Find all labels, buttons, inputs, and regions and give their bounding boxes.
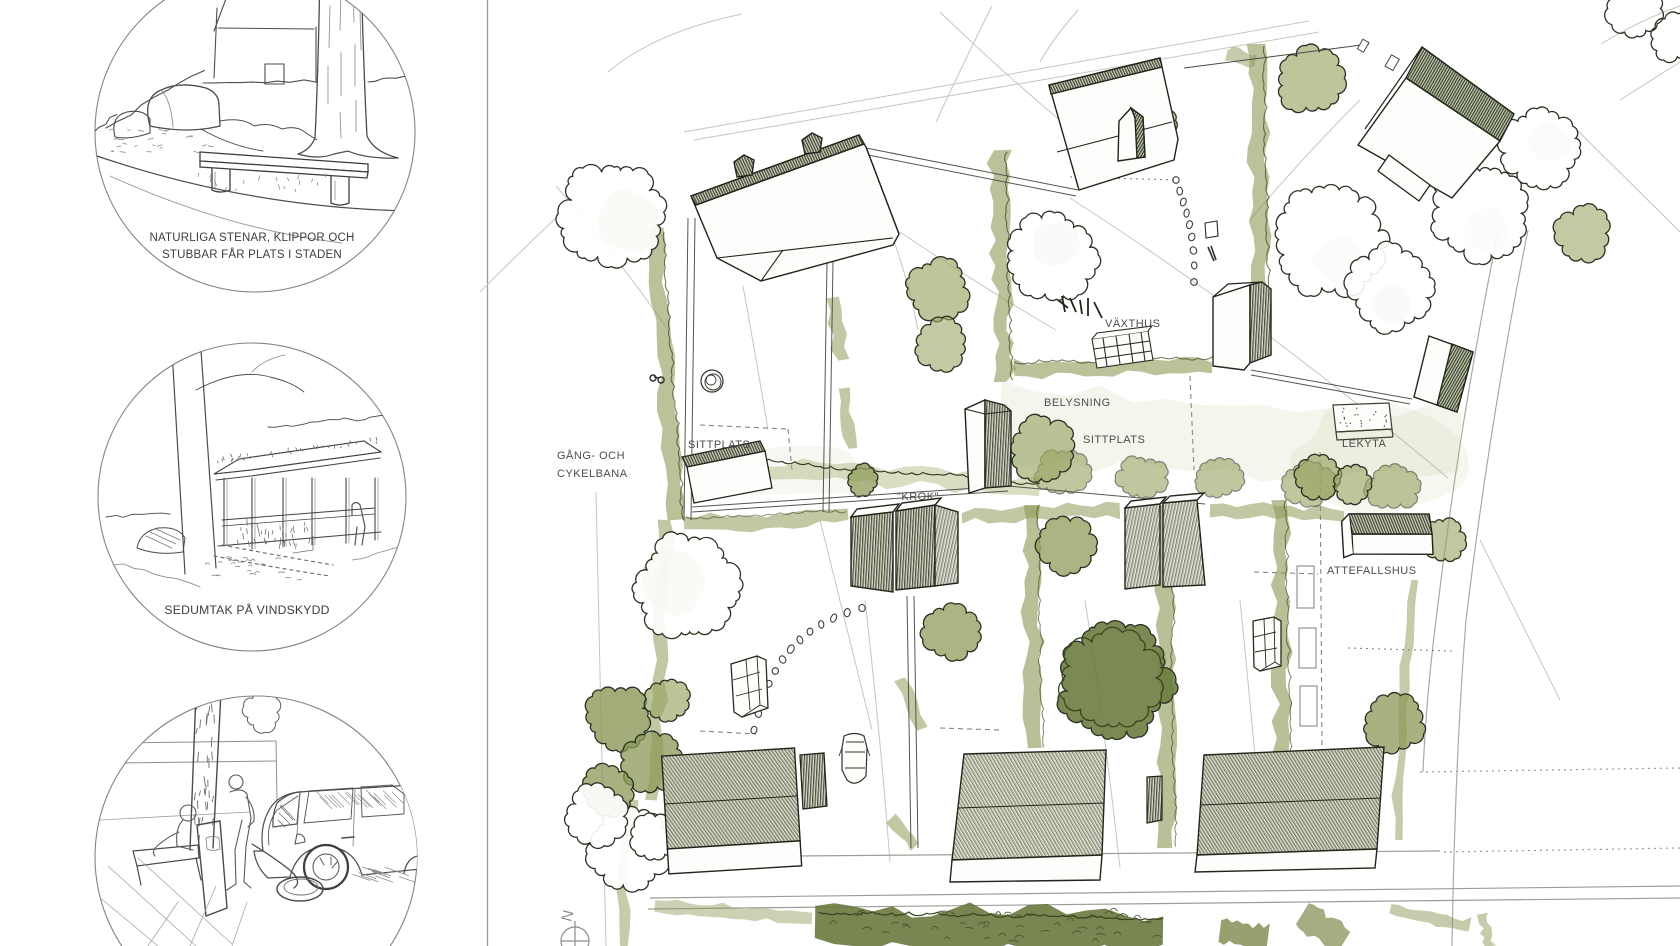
svg-text:BELYSNING: BELYSNING [1044,397,1111,409]
svg-text:NATURLIGA STENAR, KLIPPOR OCH: NATURLIGA STENAR, KLIPPOR OCH [150,232,355,244]
svg-text:"KROK": "KROK" [897,491,939,503]
svg-text:SITTPLATS: SITTPLATS [688,439,750,451]
svg-text:ATTEFALLSHUS: ATTEFALLSHUS [1327,565,1417,577]
svg-text:VÄXTHUS: VÄXTHUS [1105,318,1160,330]
svg-text:GÅNG- OCH: GÅNG- OCH [557,449,625,462]
svg-text:SITTPLATS: SITTPLATS [1083,434,1145,446]
svg-text:STUBBAR FÅR PLATS I STADEN: STUBBAR FÅR PLATS I STADEN [162,248,342,261]
svg-text:LEKYTA: LEKYTA [1342,438,1387,450]
svg-text:CYKELBANA: CYKELBANA [557,468,628,480]
svg-text:SEDUMTAK PÅ VINDSKYDD: SEDUMTAK PÅ VINDSKYDD [164,602,329,617]
